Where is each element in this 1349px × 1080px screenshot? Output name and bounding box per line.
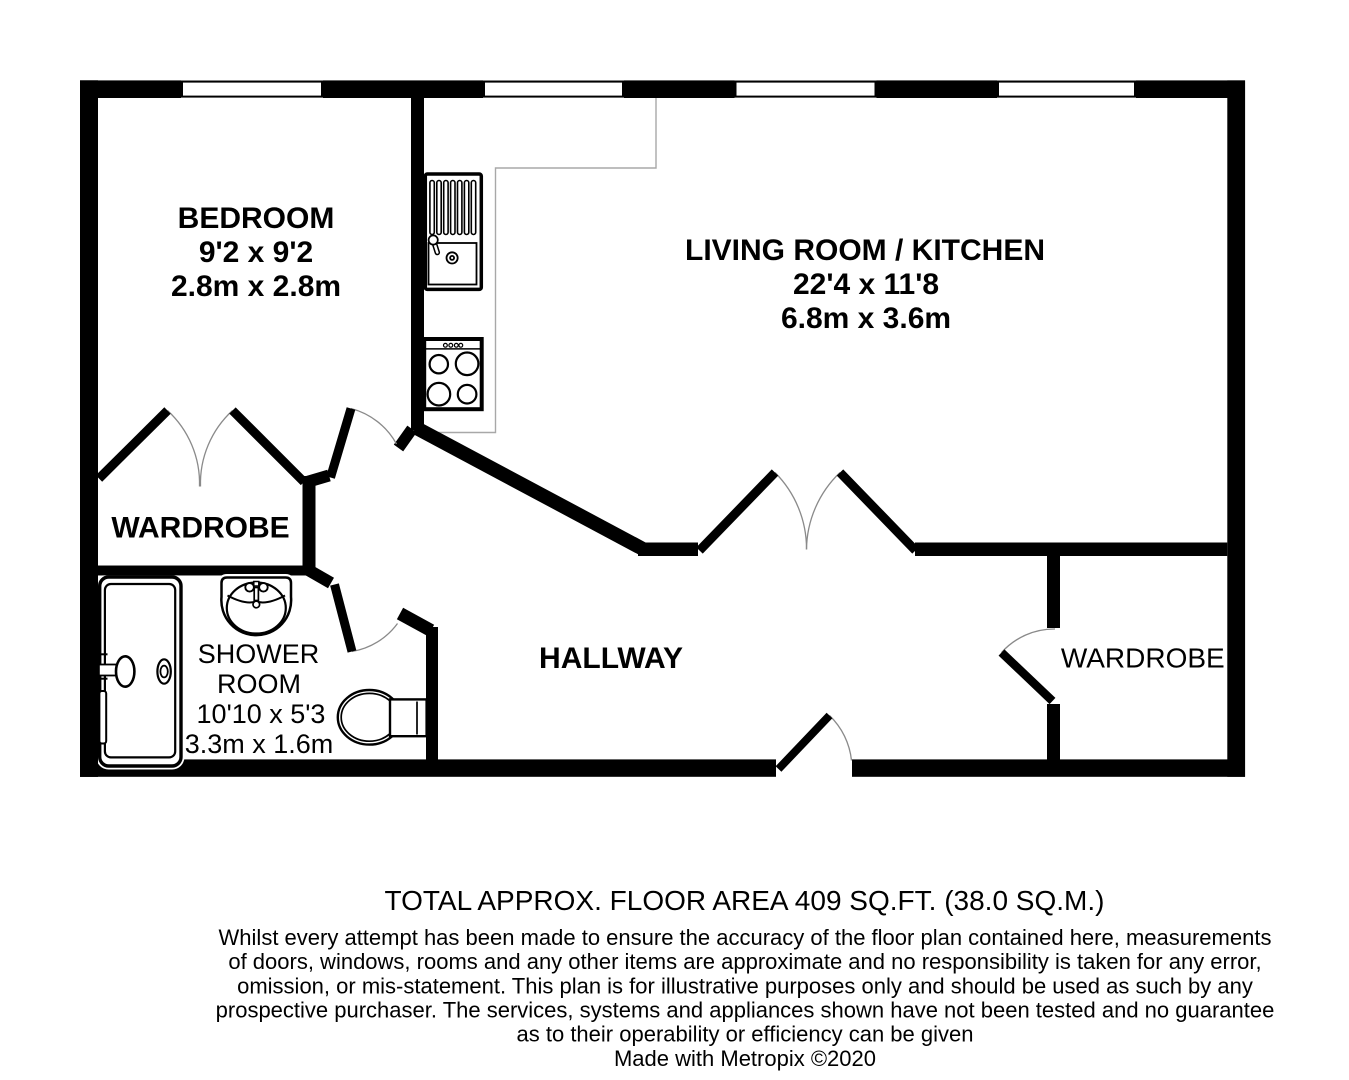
svg-text:as to their operability or eff: as to their operability or efficiency ca… — [517, 1022, 974, 1047]
svg-text:ROOM: ROOM — [217, 669, 301, 699]
svg-text:omission, or mis-statement. Th: omission, or mis-statement. This plan is… — [237, 974, 1253, 999]
svg-text:10'10 x 5'3: 10'10 x 5'3 — [197, 699, 326, 729]
svg-text:2.8m x 2.8m: 2.8m x 2.8m — [171, 270, 341, 303]
svg-text:BEDROOM: BEDROOM — [178, 202, 335, 235]
svg-text:Made with Metropix ©2020: Made with Metropix ©2020 — [614, 1046, 876, 1071]
svg-text:WARDROBE: WARDROBE — [111, 512, 289, 545]
svg-text:6.8m x 3.6m: 6.8m x 3.6m — [781, 302, 951, 335]
svg-text:TOTAL APPROX. FLOOR AREA 409 S: TOTAL APPROX. FLOOR AREA 409 SQ.FT. (38.… — [385, 885, 1105, 916]
svg-text:HALLWAY: HALLWAY — [539, 642, 683, 675]
svg-text:LIVING ROOM / KITCHEN: LIVING ROOM / KITCHEN — [685, 234, 1045, 267]
svg-text:SHOWER: SHOWER — [198, 639, 320, 669]
svg-text:WARDROBE: WARDROBE — [1061, 643, 1225, 674]
svg-text:22'4 x 11'8: 22'4 x 11'8 — [793, 268, 939, 301]
svg-text:3.3m x 1.6m: 3.3m x 1.6m — [185, 729, 334, 759]
svg-text:9'2 x 9'2: 9'2 x 9'2 — [199, 236, 313, 269]
svg-text:prospective purchaser. The ser: prospective purchaser. The services, sys… — [216, 998, 1275, 1023]
svg-text:Whilst every attempt has been: Whilst every attempt has been made to en… — [219, 925, 1272, 950]
svg-text:of doors, windows, rooms and a: of doors, windows, rooms and any other i… — [228, 949, 1261, 974]
